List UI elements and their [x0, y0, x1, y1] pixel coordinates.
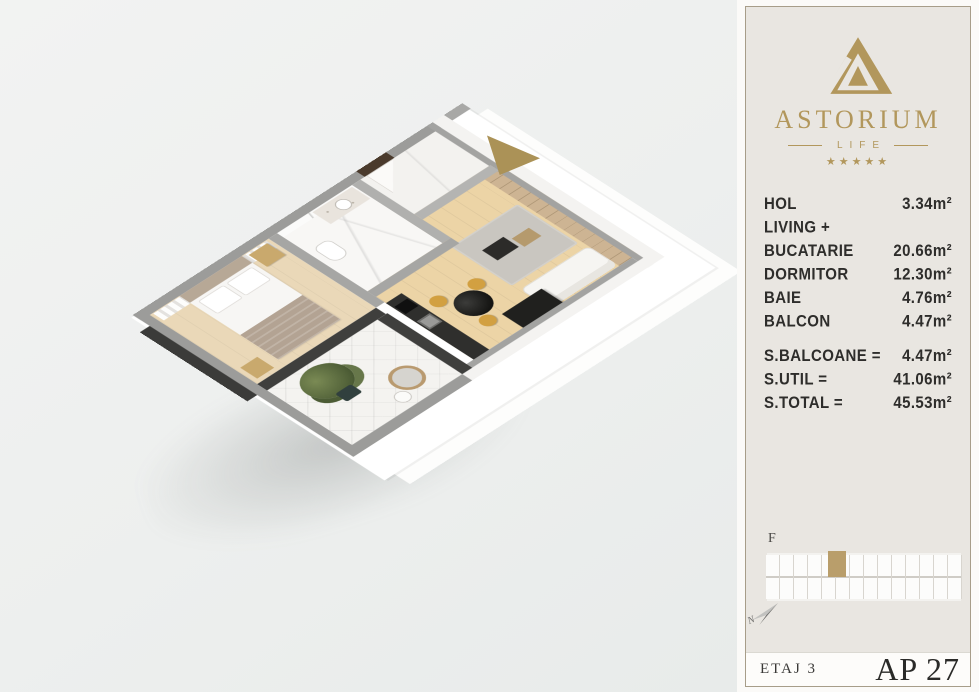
room-area-list: HOL 3.34m² LIVING + BUCATARIE 20.66m² DO…: [764, 192, 952, 333]
brand-name: ASTORIUM: [746, 105, 970, 135]
total-row: S.TOTAL = 45.53m²: [764, 391, 952, 415]
room-label: BALCON: [764, 310, 831, 334]
room-row: BAIE 4.76m²: [764, 286, 952, 310]
astorium-triangle-logo-icon: [822, 35, 894, 97]
brand-subtitle-row: LIFE: [746, 140, 970, 151]
info-panel: ASTORIUM LIFE ★★★★★ HOL 3.34m² LIVING +: [737, 0, 979, 692]
room-label: BAIE: [764, 286, 801, 310]
room-value: 12.30m²: [893, 263, 952, 287]
logo-block: ASTORIUM LIFE ★★★★★: [746, 35, 970, 168]
total-value: 4.47m²: [902, 344, 952, 368]
room-value: 4.76m²: [902, 286, 952, 310]
room-value: 3.34m²: [902, 192, 952, 216]
building-locator: F N: [746, 531, 970, 599]
panel-footer: ETAJ 3 AP 27: [746, 652, 970, 686]
brand-subtitle: LIFE: [830, 140, 886, 151]
total-label: S.TOTAL =: [764, 391, 843, 415]
room-row: BALCON 4.47m²: [764, 310, 952, 334]
decorative-line: [894, 145, 928, 146]
total-row: S.BALCOANE = 4.47m²: [764, 344, 952, 368]
floor-label: ETAJ 3: [760, 661, 817, 678]
section-label: F: [768, 531, 970, 547]
room-row: LIVING +: [764, 216, 952, 240]
room-label: DORMITOR: [764, 263, 849, 287]
north-compass-icon: N: [752, 603, 778, 625]
room-row: HOL 3.34m²: [764, 192, 952, 216]
total-row: S.UTIL = 41.06m²: [764, 368, 952, 392]
room-row: DORMITOR 12.30m²: [764, 263, 952, 287]
panel-content: ASTORIUM LIFE ★★★★★ HOL 3.34m² LIVING +: [745, 6, 971, 687]
room-label: BUCATARIE: [764, 239, 854, 263]
room-label: HOL: [764, 192, 797, 216]
building-floor-map: [766, 555, 962, 599]
room-value: 4.47m²: [902, 310, 952, 334]
decorative-line: [788, 145, 822, 146]
five-stars-icon: ★★★★★: [746, 155, 970, 168]
apartment-number: AP 27: [875, 651, 960, 688]
total-value: 41.06m²: [893, 368, 952, 392]
room-label: LIVING +: [764, 216, 830, 240]
total-label: S.UTIL =: [764, 368, 827, 392]
room-row: BUCATARIE 20.66m²: [764, 239, 952, 263]
floorplan-canvas: [0, 0, 737, 692]
totals-list: S.BALCOANE = 4.47m² S.UTIL = 41.06m² S.T…: [764, 344, 952, 415]
isometric-scene: [115, 55, 695, 525]
apartment-brochure-page: ASTORIUM LIFE ★★★★★ HOL 3.34m² LIVING +: [0, 0, 979, 692]
compass-letter: N: [746, 614, 757, 627]
room-value: 20.66m²: [893, 239, 952, 263]
total-label: S.BALCOANE =: [764, 344, 881, 368]
locator-highlighted-unit: [828, 551, 846, 577]
total-value: 45.53m²: [893, 391, 952, 415]
